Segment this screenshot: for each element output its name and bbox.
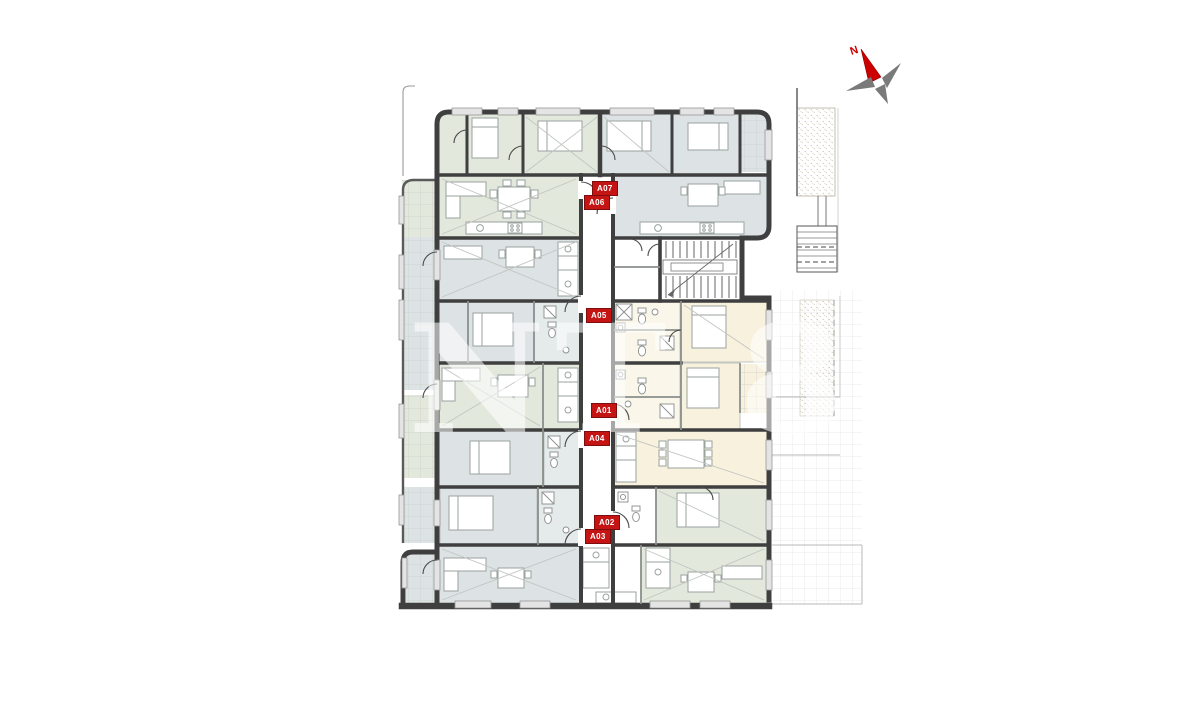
bed [687,368,719,408]
kitchen-counter [558,242,578,296]
unit-badge-a04[interactable]: A04 [584,431,610,446]
unit-badge-a06[interactable]: A06 [584,195,610,210]
external-staircase [797,226,837,272]
unit-badge-a05[interactable]: A05 [586,308,612,323]
dining-table [491,375,535,397]
north-label: N [849,44,860,58]
sofa [444,246,482,259]
bed [688,123,728,150]
bed [538,121,582,151]
bed [692,306,726,348]
kitchen-counter [646,548,670,588]
room-a05-closet [439,302,468,362]
kitchen-counter [466,222,542,234]
gravel-area-top [797,108,835,196]
sofa [724,181,760,194]
room-elevator-lobby [614,239,660,300]
unit-badge-a02[interactable]: A02 [594,515,620,530]
floor-plan-drawing [0,0,1200,715]
gravel-area-right [800,300,834,416]
unit-badge-a03[interactable]: A03 [585,529,611,544]
bed [472,118,498,158]
west-arrow [846,77,875,91]
unit-badge-a07[interactable]: A07 [592,181,618,196]
bed [470,441,510,474]
apartment-floor-plan: NT 8 A07 A06 A05 A01 A04 A02 A03 N [0,0,1200,715]
dining-table [681,184,725,206]
kitchen-counter [558,368,578,422]
kitchen-counter [640,222,744,234]
room-a07-closet [439,114,467,175]
south-arrow [875,84,888,104]
unit-badge-a01[interactable]: A01 [591,403,617,418]
bed [449,496,493,530]
sofa [722,566,762,579]
compass: N [842,36,906,112]
bed [473,313,513,346]
room-a05-bath [534,302,580,362]
